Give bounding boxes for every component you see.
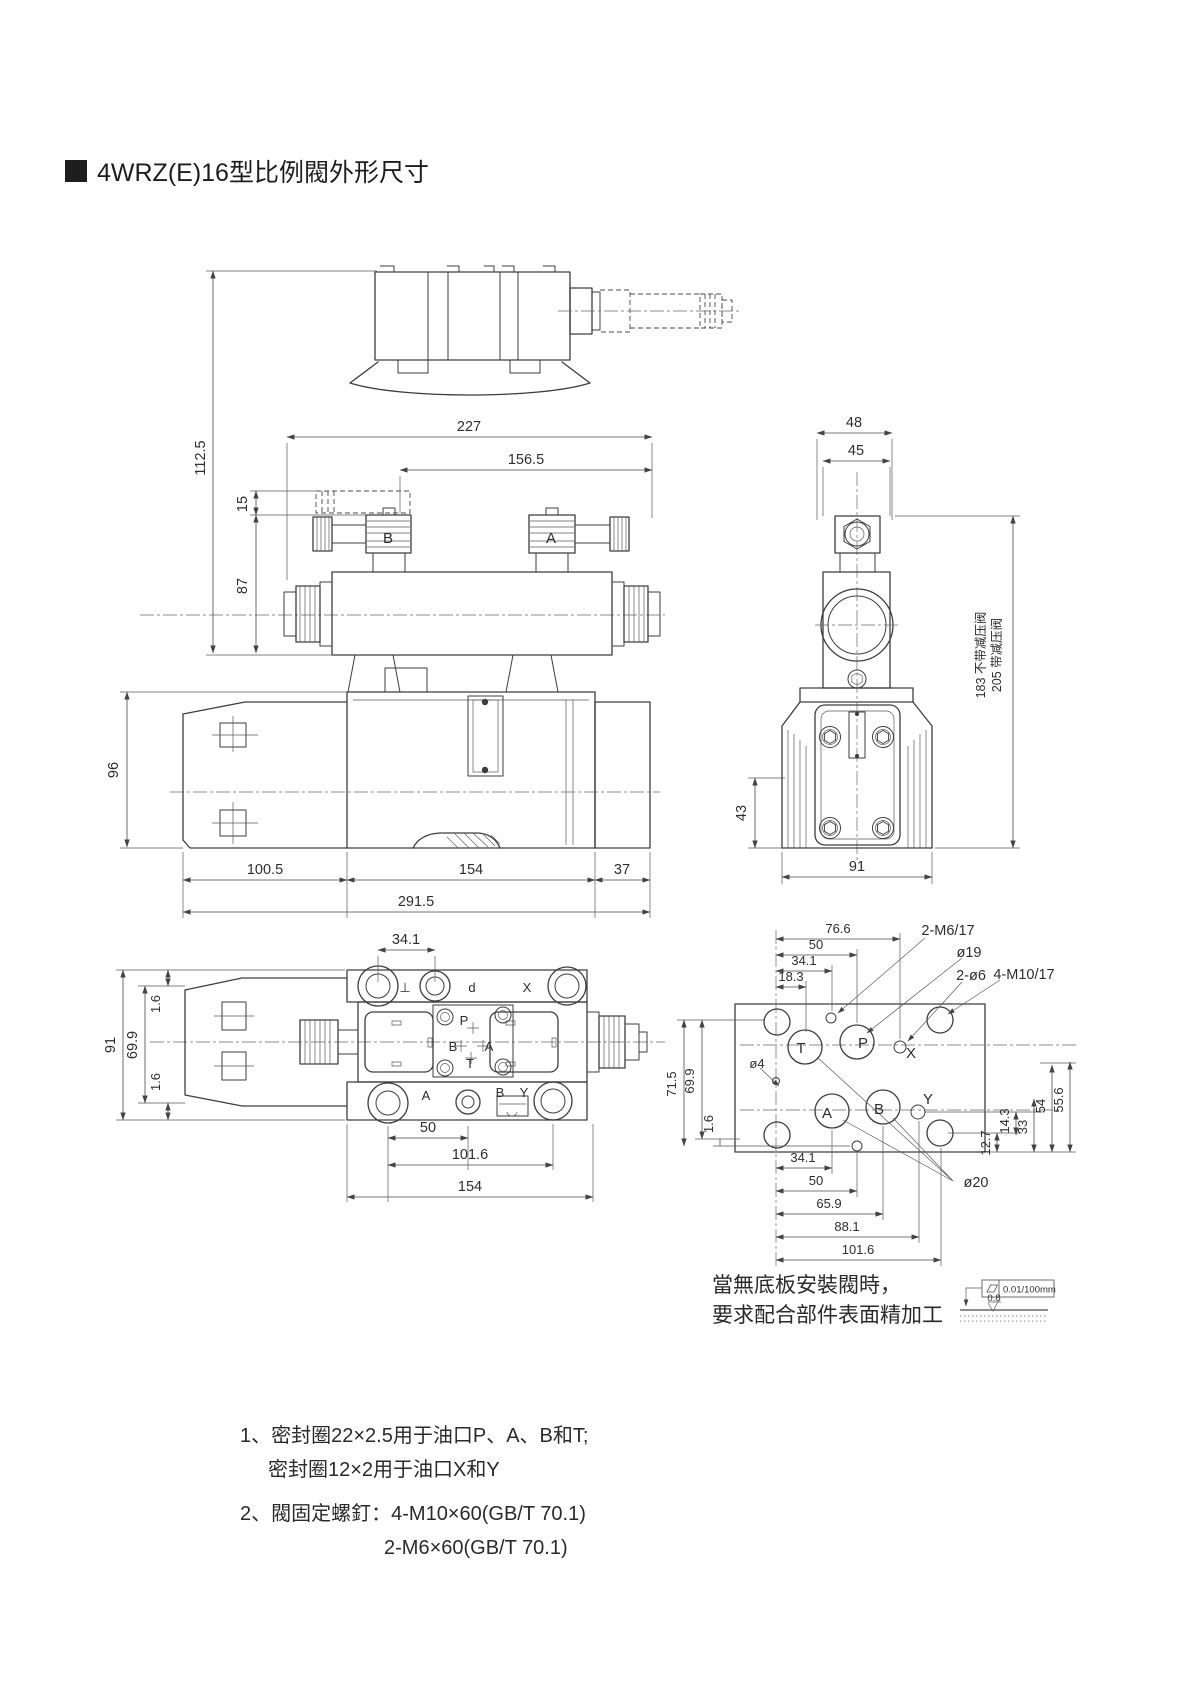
callout-d20-label: ø20 — [964, 1175, 989, 1191]
dim-45-label: 45 — [848, 443, 864, 459]
surface-note-line1: 當無底板安裝閥時， — [712, 1274, 901, 1297]
dim-154-front-label: 154 — [459, 862, 483, 878]
solenoid-a-label: A — [546, 530, 556, 547]
datasheet-page: 4WRZ(E)16型比例閥外形尺寸 — [0, 0, 1200, 1699]
callout-2-d6-label: 2-ø6 — [956, 968, 986, 984]
port-p-rotated-label: d — [468, 980, 475, 995]
dim-1-6-plate-label: 1.6 — [701, 1115, 716, 1133]
footnotes: 1、密封圈22×2.5用于油口P、A、B和T; 密封圈12×2用于油口X和Y 2… — [240, 1424, 588, 1559]
plate-port-y-label: Y — [923, 1091, 933, 1108]
height-205-label: 205 带减压阀 — [990, 618, 1004, 692]
dim-101-6-plate-label: 101.6 — [842, 1242, 875, 1257]
dim-50-bottom-plate-label: 50 — [809, 1173, 823, 1188]
front-view: 112.5 227 156.5 15 87 96 B A 100.5 154 3… — [106, 271, 665, 918]
label-b-bottom: B — [496, 1085, 505, 1100]
note-bolts-line2: 2-M6×60(GB/T 70.1) — [384, 1537, 568, 1559]
dim-15-label: 15 — [235, 496, 251, 512]
surface-note-line2: 要求配合部件表面精加工 — [712, 1304, 943, 1327]
port-t-label: T — [466, 1056, 474, 1071]
note-seal-line1: 1、密封圈22×2.5用于油口P、A、B和T; — [240, 1424, 588, 1447]
dim-69-9-plate-label: 69.9 — [682, 1068, 697, 1093]
port-p-label: P — [460, 1013, 469, 1028]
note-seal-line2: 密封圈12×2用于油口X和Y — [268, 1458, 500, 1481]
callout-2-m6-label: 2-M6/17 — [921, 923, 974, 939]
bottom-view: 34.1 ⊥ d X 91 69.9 1.6 1.6 P B A T A B Y… — [103, 932, 665, 1202]
dim-96-label: 96 — [106, 762, 122, 778]
label-a-bottom: A — [422, 1088, 431, 1103]
top-view — [206, 266, 742, 395]
dim-156-5-label: 156.5 — [508, 452, 544, 468]
callout-4-m10-label: 4-M10/17 — [993, 967, 1054, 983]
dim-65-9-label: 65.9 — [816, 1196, 841, 1211]
mounting-plate-view: 18.3 34.1 50 76.6 2-M6/17 ø19 2-ø6 4-M10… — [664, 921, 1076, 1266]
plate-port-x-label: X — [906, 1045, 916, 1062]
page-header: 4WRZ(E)16型比例閥外形尺寸 — [65, 159, 429, 187]
dim-33-label: 33 — [1015, 1120, 1030, 1134]
callout-d19-label: ø19 — [957, 945, 982, 961]
dim-291-5-label: 291.5 — [398, 894, 434, 910]
dim-54-label: 54 — [1033, 1099, 1048, 1113]
flatness-symbol-icon — [987, 1285, 998, 1292]
dim-76-6-label: 76.6 — [825, 921, 850, 936]
title-bullet-square — [65, 160, 87, 182]
note-bolts-line1: 2、閥固定螺釘：4-M10×60(GB/T 70.1) — [240, 1502, 586, 1525]
surface-finish-note: 當無底板安裝閥時， 要求配合部件表面精加工 0.01/100mm 0.8 — [712, 1274, 1056, 1327]
dim-227-label: 227 — [457, 419, 481, 435]
plate-port-t-label: T — [796, 1040, 805, 1057]
dim-48-label: 48 — [846, 415, 862, 431]
port-a-label: A — [485, 1039, 494, 1054]
dim-14-3-label: 14.3 — [997, 1108, 1012, 1133]
dim-91-bottom-view-label: 91 — [103, 1037, 119, 1053]
dim-88-1-label: 88.1 — [834, 1219, 859, 1234]
flatness-value: 0.01/100mm — [1003, 1285, 1056, 1296]
dim-87-label: 87 — [235, 578, 251, 594]
port-b-label: B — [449, 1039, 458, 1054]
callout-d4-label: ø4 — [749, 1056, 764, 1071]
dim-43-label: 43 — [734, 805, 750, 821]
solenoid-b-label: B — [383, 530, 393, 547]
plate-port-p-label: P — [858, 1035, 868, 1052]
dim-154-bottom-view-label: 154 — [458, 1179, 482, 1195]
plate-port-b-label: B — [874, 1101, 884, 1118]
dim-1-6-bottom-label: 1.6 — [148, 1073, 163, 1091]
port-t-rotated-label: ⊥ — [399, 980, 410, 995]
dim-1-6-top-label: 1.6 — [148, 995, 163, 1013]
dim-34-1-bottom-plate-label: 34.1 — [790, 1150, 815, 1165]
plate-port-a-label: A — [822, 1105, 832, 1122]
side-view: 48 45 — [734, 415, 1020, 884]
dim-50-bottom-view-label: 50 — [420, 1120, 436, 1136]
dim-112-5-label: 112.5 — [193, 440, 209, 475]
dim-91-side-label: 91 — [849, 859, 865, 875]
dim-101-6-bottom-view-label: 101.6 — [452, 1147, 488, 1163]
dim-69-9-bottom-view-label: 69.9 — [125, 1031, 141, 1059]
dim-37-label: 37 — [614, 862, 630, 878]
label-y-bottom: Y — [520, 1085, 529, 1100]
dim-34-1-bottom-view-label: 34.1 — [392, 932, 420, 948]
port-x-top-label: X — [523, 980, 532, 995]
dim-55-6-label: 55.6 — [1051, 1087, 1066, 1112]
dim-100-5-label: 100.5 — [247, 862, 283, 878]
dim-12-7-label: 12.7 — [978, 1130, 993, 1155]
height-183-label: 183 不带减压阀 — [974, 612, 988, 699]
dim-71-5-label: 71.5 — [664, 1071, 679, 1096]
page-title: 4WRZ(E)16型比例閥外形尺寸 — [97, 159, 429, 187]
mounting-bolts — [820, 727, 894, 839]
